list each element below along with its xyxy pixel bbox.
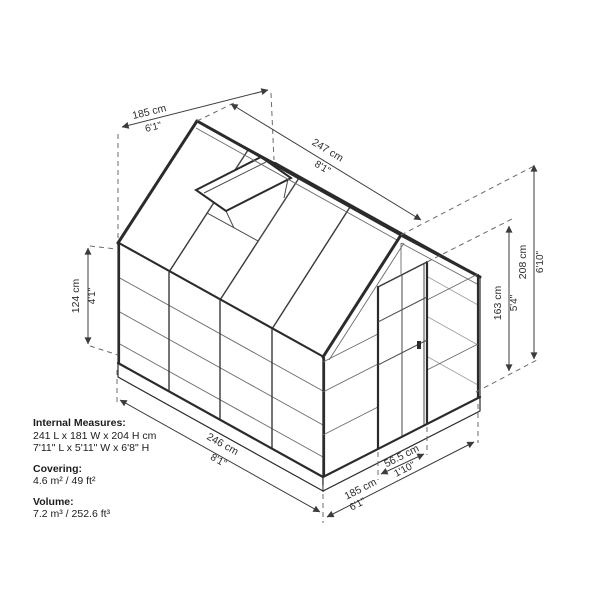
dim-label-ft: 4'1"	[87, 287, 98, 304]
greenhouse-dimension-diagram: 185 cm 6'1" 247 cm 8'1" 124 cm 4'1" 208 …	[0, 0, 615, 615]
extension-line	[476, 360, 537, 392]
extension-line	[271, 93, 274, 160]
dim-label-ft: 5'4"	[509, 294, 520, 311]
extension-line	[401, 166, 534, 235]
internal-measures-ft: 7'11" L x 5'11" W x 6'8" H	[33, 442, 156, 455]
extension-line	[197, 102, 236, 121]
dim-label-ft: 6'1"	[144, 120, 163, 135]
door-handle	[417, 341, 421, 349]
diagram-canvas: 185 cm 6'1" 247 cm 8'1" 124 cm 4'1" 208 …	[0, 0, 615, 615]
specs-panel: Internal Measures: 241 L x 181 W x 204 H…	[33, 417, 156, 521]
dim-label-cm: 247 cm	[310, 136, 346, 164]
volume-value: 7.2 m³ / 252.6 ft³	[33, 508, 156, 521]
extension-line	[90, 246, 116, 249]
dim-label-cm: 208 cm	[517, 245, 529, 280]
dim-label-ft: 8'1"	[208, 452, 228, 470]
volume-label: Volume:	[33, 496, 156, 509]
dim-side-wall-height: 124 cm 4'1"	[70, 246, 118, 355]
dim-label-cm: 124 cm	[70, 279, 82, 314]
extension-line	[90, 346, 118, 355]
greenhouse-drawing	[118, 121, 480, 491]
dim-label-cm: 185 cm	[131, 102, 168, 122]
covering-value: 4.6 m² / 49 ft²	[33, 475, 156, 488]
covering-label: Covering:	[33, 463, 156, 476]
dim-total-height: 208 cm 6'10"	[476, 165, 546, 392]
dim-label-cm: 163 cm	[492, 286, 504, 321]
internal-measures-cm: 241 L x 181 W x 204 H cm	[33, 430, 156, 443]
internal-measures-label: Internal Measures:	[33, 417, 156, 430]
dim-label-ft: 8'1"	[312, 159, 332, 177]
dim-label-ft: 6'10"	[535, 250, 546, 273]
